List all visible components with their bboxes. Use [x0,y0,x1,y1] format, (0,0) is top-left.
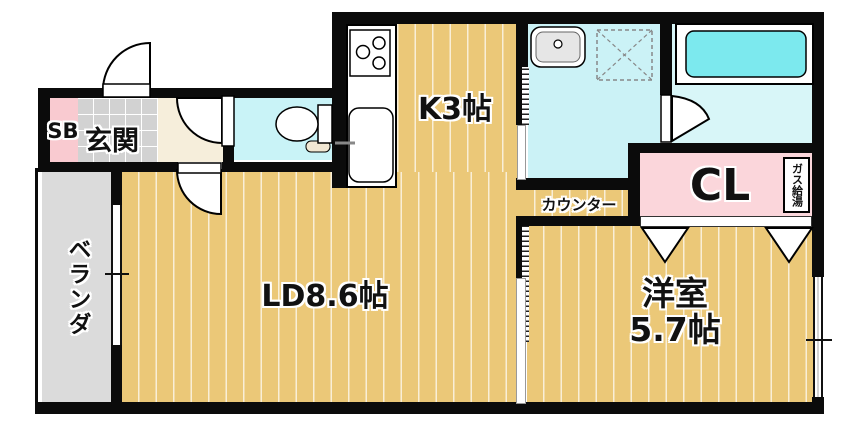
toilet-door-swing-icon [177,96,234,146]
kitchen-sink-icon [335,108,393,182]
toilet-icon [276,105,332,152]
entrance-label: 玄関 [72,119,152,158]
kitchen-label: K3帖 [395,84,515,128]
living-door-swing-icon [177,163,221,214]
entrance-door-swing-icon [103,43,150,97]
closet-bifold-door-icon [642,228,812,262]
gas-water-heater-box: ガス給湯 [783,157,810,213]
washbasin-icon [531,27,585,67]
bathtub-icon [676,24,813,84]
veranda-label: ベランダ [58,222,94,352]
bathroom-folding-door-icon [661,95,709,142]
closet-label: CL [670,162,770,210]
western-room-name: 洋室 [642,274,708,313]
living-dining-label: LD8.6帖 [215,271,435,315]
stove-icon [350,30,390,76]
western-room-label: 洋室 5.7帖 [600,276,750,349]
western-room-size: 5.7帖 [629,310,720,349]
washing-machine-pan-icon [597,30,652,80]
floorplan: SB 玄関 K3帖 カウンター CL ガス給湯 LD8.6帖 洋室 5.7帖 ベ… [0,0,865,431]
counter-label: カウンター [520,194,638,215]
